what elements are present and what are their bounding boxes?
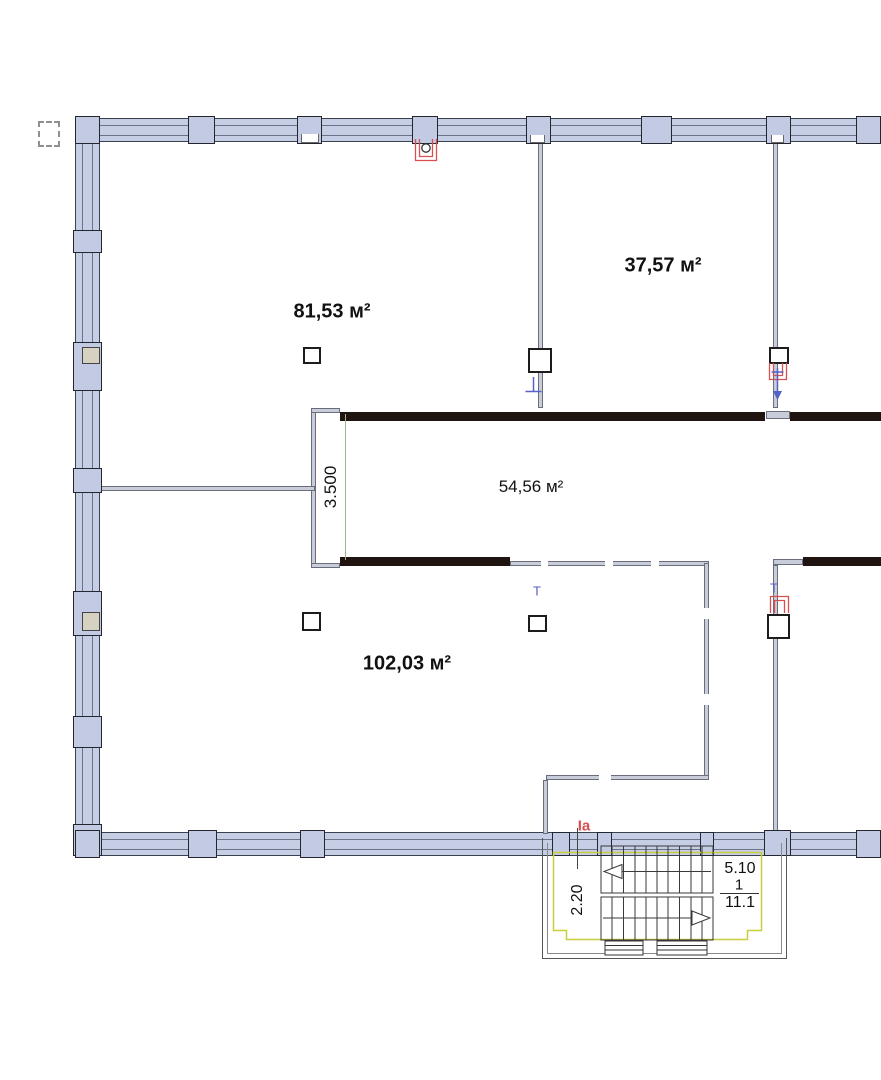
column-symbol bbox=[302, 612, 321, 631]
room-area-label: 54,56 м² bbox=[499, 477, 564, 497]
wall-pier bbox=[75, 830, 100, 858]
tee-mark: T bbox=[770, 581, 778, 596]
column-symbol bbox=[528, 348, 552, 373]
corridor-north-wall bbox=[790, 412, 881, 421]
partition-room102-east bbox=[543, 780, 548, 834]
radiator-icon bbox=[82, 612, 100, 631]
door-opening bbox=[651, 560, 659, 567]
corridor-south-wall bbox=[340, 557, 510, 566]
wall-pier bbox=[73, 716, 102, 748]
partition-room102-south bbox=[546, 775, 709, 780]
door-opening bbox=[605, 560, 613, 567]
stair-mark-top: 5.10 bbox=[724, 860, 755, 878]
wall-pier bbox=[641, 116, 672, 144]
column-symbol bbox=[767, 614, 790, 639]
wall-pier bbox=[412, 116, 438, 144]
room-area-label: 37,57 м² bbox=[624, 255, 701, 278]
door-opening bbox=[703, 694, 710, 705]
door-notch bbox=[301, 134, 319, 143]
floor-plan-canvas: 81,53 м² 37,57 м² 54,56 м² 102,03 м² 3.5… bbox=[0, 0, 881, 1080]
wall-pier bbox=[856, 830, 881, 858]
corridor-south-wall bbox=[803, 557, 881, 566]
wall-pier bbox=[73, 468, 102, 493]
wall-pier bbox=[552, 832, 570, 856]
room-area-label: 81,53 м² bbox=[293, 301, 370, 324]
wall-pier bbox=[700, 832, 714, 856]
reference-bracket-icon bbox=[38, 121, 60, 147]
partition-room37-right bbox=[773, 142, 778, 408]
stair-direction-arrow-right bbox=[692, 911, 710, 925]
wall-pier bbox=[188, 116, 215, 144]
dimension-stair-width: 2.20 bbox=[569, 884, 587, 915]
wall-pier bbox=[856, 116, 881, 144]
column-symbol bbox=[303, 347, 321, 364]
column-symbol bbox=[769, 347, 789, 364]
wall-pier bbox=[764, 830, 791, 856]
door-opening bbox=[703, 608, 710, 619]
dimension-corridor-depth: 3.500 bbox=[321, 466, 341, 509]
stair-window bbox=[605, 941, 707, 955]
wall-pier bbox=[188, 830, 217, 858]
wall-pier bbox=[73, 230, 102, 253]
tee-mark: T bbox=[533, 584, 541, 599]
door-notch bbox=[530, 135, 545, 143]
room-area-label: 102,03 м² bbox=[363, 653, 451, 676]
stair-mark-number: 1 bbox=[735, 877, 743, 894]
wall-pier bbox=[75, 116, 100, 144]
partition-junction bbox=[766, 411, 790, 419]
door-opening bbox=[599, 774, 611, 781]
door-opening bbox=[541, 560, 548, 567]
wall-pier bbox=[597, 832, 612, 856]
section-label: Ia bbox=[578, 818, 591, 835]
corridor-north-wall bbox=[340, 412, 765, 421]
corridor-corner-stub bbox=[311, 408, 340, 413]
stair-flight-lower bbox=[601, 897, 713, 940]
door-notch bbox=[771, 135, 784, 143]
stair-direction-arrow-left bbox=[604, 865, 622, 879]
partition-vestibule-east bbox=[773, 565, 778, 832]
radiator-icon bbox=[82, 347, 100, 364]
corridor-corner-stub bbox=[311, 563, 340, 568]
stair-mark-bottom: 11.1 bbox=[725, 894, 755, 912]
plan-linework bbox=[0, 0, 881, 1080]
wall-pier bbox=[300, 830, 325, 858]
partition-room81-room102 bbox=[100, 486, 315, 491]
partition-vestibule-west bbox=[704, 563, 709, 778]
column-symbol bbox=[528, 615, 547, 632]
